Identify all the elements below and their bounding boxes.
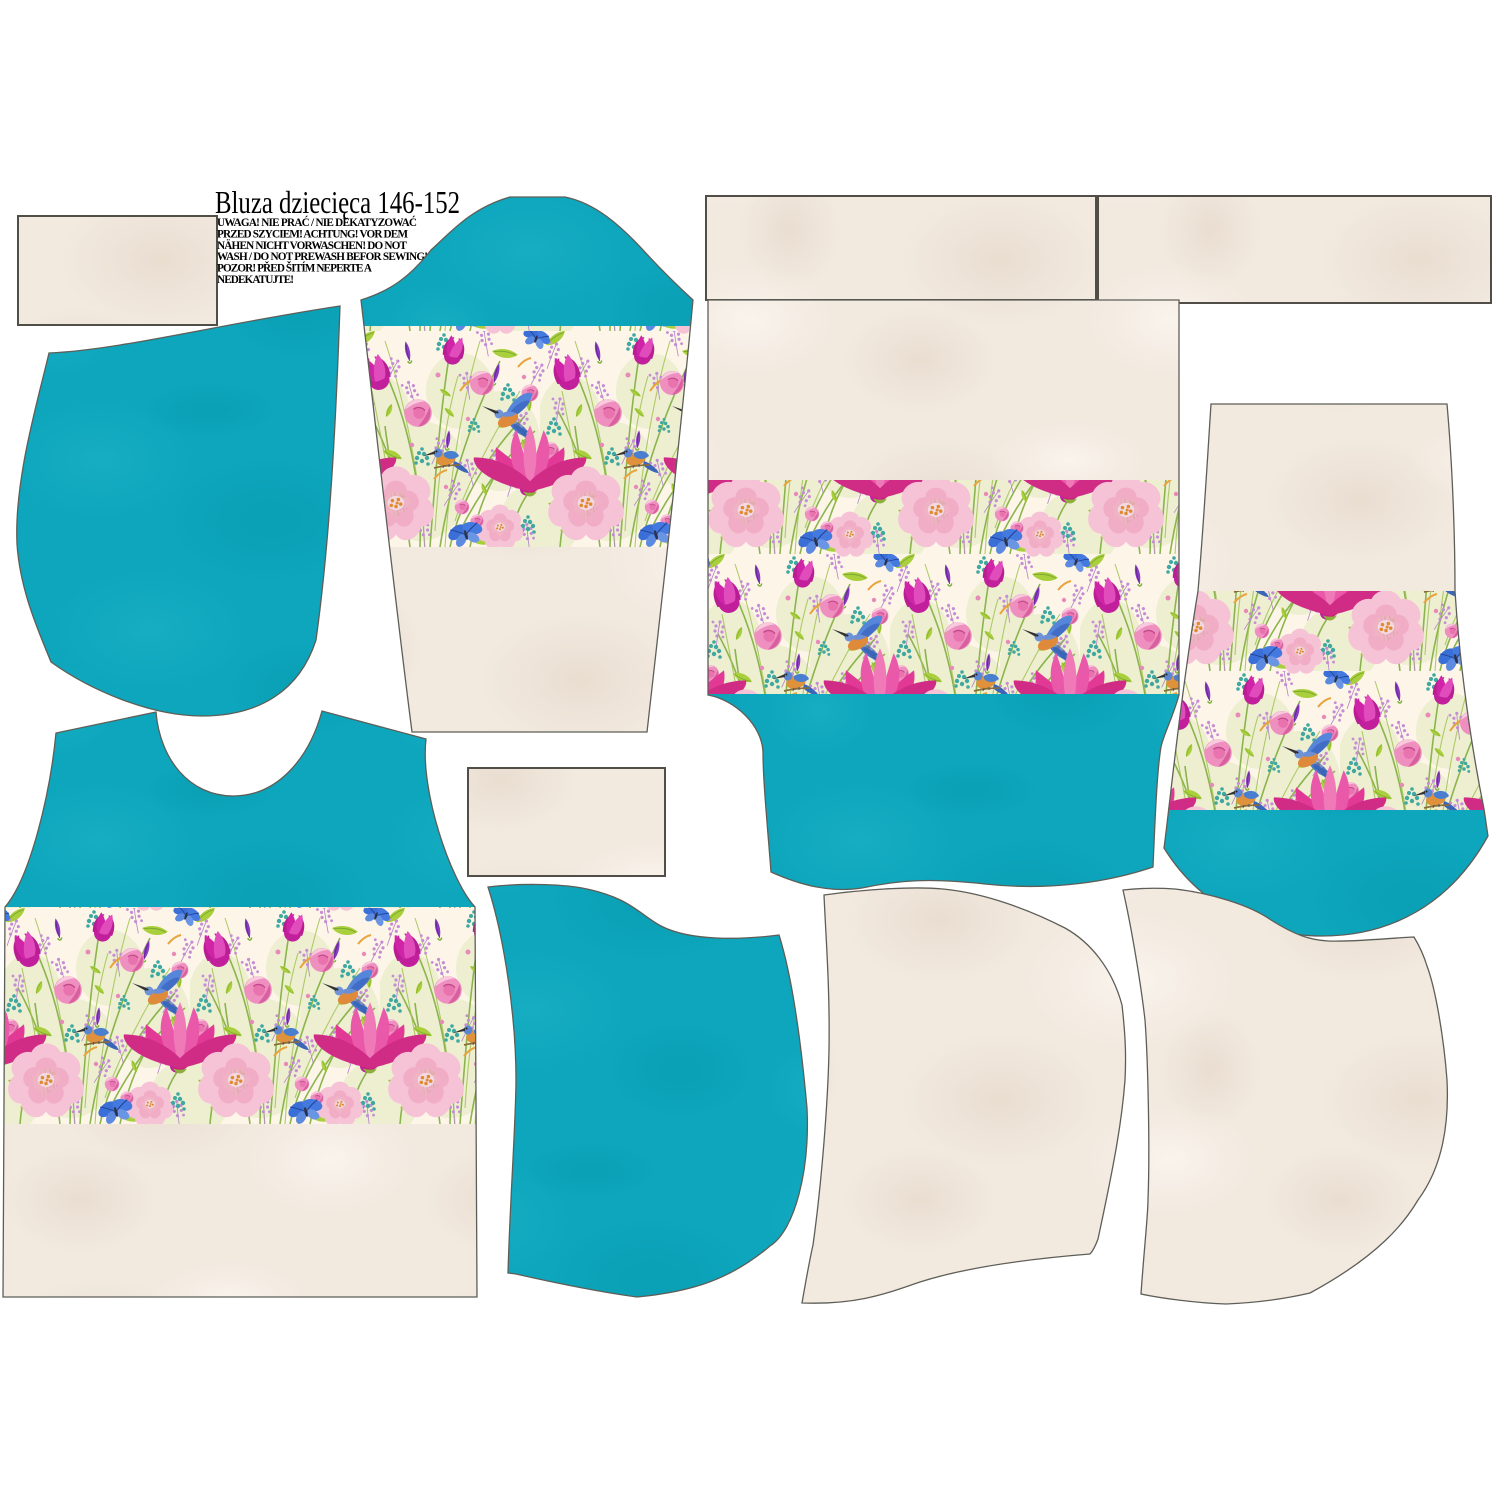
svg-text:POZOR! PŘED ŠITÍM NEPERTE A: POZOR! PŘED ŠITÍM NEPERTE A xyxy=(217,262,372,275)
svg-text:Bluza dziecięca 146-152: Bluza dziecięca 146-152 xyxy=(215,184,460,220)
svg-text:UWAGA! NIE PRAĆ / NIE DEKATYZO: UWAGA! NIE PRAĆ / NIE DEKATYZOWAĆ xyxy=(217,217,417,229)
svg-text:NÄHEN NICHT VORWASCHEN! DO NOT: NÄHEN NICHT VORWASCHEN! DO NOT xyxy=(217,239,408,252)
svg-text:WASH / DO NOT PREWASH BEFOR SE: WASH / DO NOT PREWASH BEFOR SEWING! xyxy=(217,251,428,263)
svg-text:PRZED SZYCIEM! ACHTUNG! VOR DE: PRZED SZYCIEM! ACHTUNG! VOR DEM xyxy=(217,228,408,240)
svg-text:NEDEKATUJTE!: NEDEKATUJTE! xyxy=(217,274,294,286)
